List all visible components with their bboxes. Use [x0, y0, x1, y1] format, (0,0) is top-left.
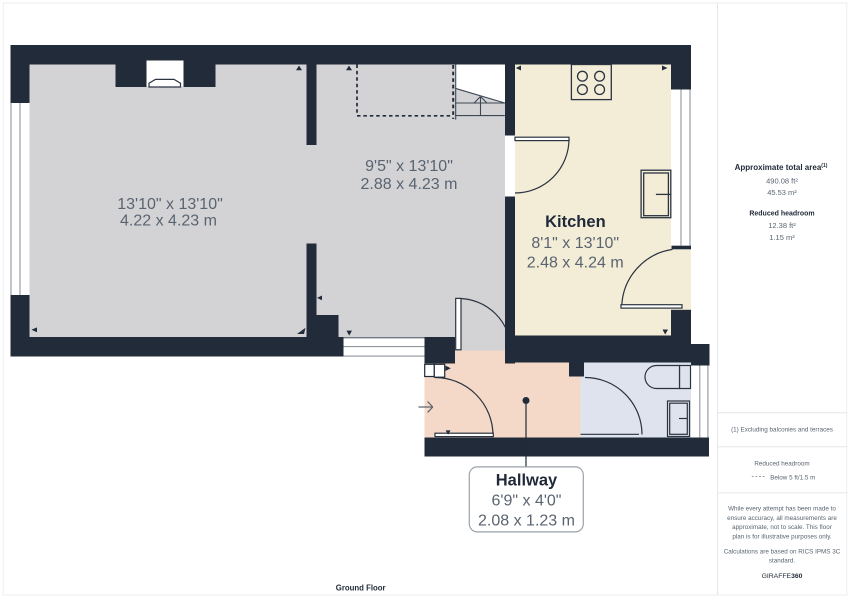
svg-text:4.22 x 4.23 m: 4.22 x 4.23 m [120, 213, 217, 230]
svg-text:Below 5 ft/1.5 m: Below 5 ft/1.5 m [770, 474, 815, 481]
svg-text:1.15 m²: 1.15 m² [769, 233, 795, 242]
svg-text:45.53 m²: 45.53 m² [767, 188, 797, 197]
svg-text:Hallway: Hallway [496, 472, 558, 490]
svg-text:Reduced headroom: Reduced headroom [754, 461, 809, 468]
svg-text:While every attempt has been m: While every attempt has been made to [728, 506, 836, 513]
svg-text:plan is for illustrative purpo: plan is for illustrative purposes only. [732, 533, 832, 540]
svg-text:approximate, not to scale. Thi: approximate, not to scale. This floor [732, 524, 832, 531]
svg-text:12.38 ft²: 12.38 ft² [768, 221, 796, 230]
svg-text:(1) Excluding balconies and te: (1) Excluding balconies and terraces [731, 427, 833, 434]
svg-text:GIRAFFE360: GIRAFFE360 [762, 573, 803, 580]
svg-text:2.88 x 4.23 m: 2.88 x 4.23 m [361, 176, 458, 193]
svg-text:2.48 x 4.24 m: 2.48 x 4.24 m [527, 255, 624, 272]
svg-text:Calculations are based on RICS: Calculations are based on RICS IPMS 3C [724, 548, 841, 555]
svg-text:9'5" x 13'10": 9'5" x 13'10" [365, 158, 453, 175]
svg-text:ensure accuracy, all measureme: ensure accuracy, all measurements are [727, 515, 837, 522]
svg-text:Kitchen: Kitchen [545, 213, 606, 231]
svg-text:8'1" x 13'10": 8'1" x 13'10" [531, 235, 619, 252]
svg-text:Ground Floor: Ground Floor [336, 584, 386, 593]
svg-text:Reduced headroom: Reduced headroom [749, 210, 814, 217]
svg-text:2.08 x 1.23 m: 2.08 x 1.23 m [478, 513, 575, 530]
svg-text:Approximate total area(1): Approximate total area(1) [735, 163, 828, 172]
svg-text:13'10" x 13'10": 13'10" x 13'10" [117, 196, 223, 213]
svg-text:490.08 ft²: 490.08 ft² [766, 177, 798, 186]
svg-text:6'9" x 4'0": 6'9" x 4'0" [492, 493, 562, 510]
svg-text:standard.: standard. [769, 558, 796, 565]
